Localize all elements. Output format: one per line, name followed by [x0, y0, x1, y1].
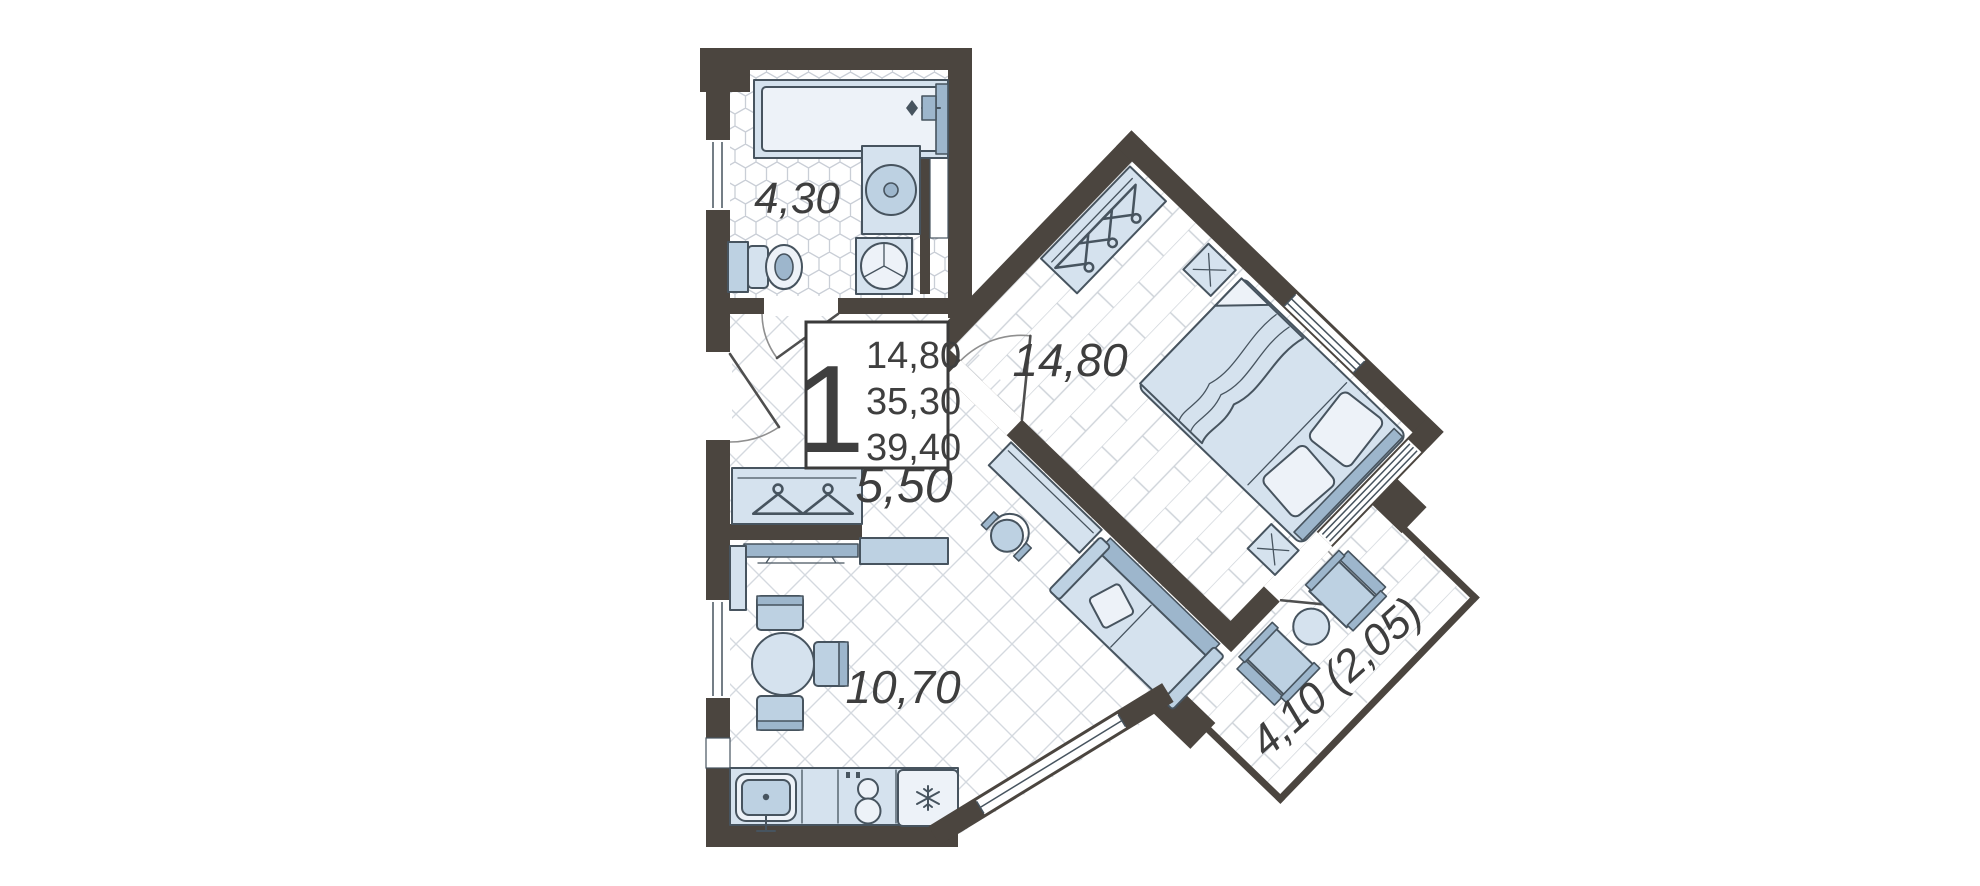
bathroom-label: 4,30: [754, 174, 840, 223]
washing-machine-icon: [862, 146, 920, 234]
wall-bottom: [706, 825, 958, 847]
wall-hall-kitchen: [706, 524, 862, 540]
wall-left-1: [706, 48, 730, 140]
kitchen-counter: [730, 768, 958, 831]
dining-table: [752, 633, 814, 695]
chair: [814, 642, 848, 686]
washbasin-icon: [856, 238, 912, 294]
info-box: 1 14,80 35,30 39,40: [796, 322, 962, 479]
wall-left-3: [706, 440, 730, 600]
wall-left-2: [706, 210, 730, 352]
wall-left-4: [706, 698, 730, 738]
chair: [757, 596, 803, 630]
toilet-icon: [728, 242, 802, 292]
wall-niche: [706, 738, 730, 768]
floor-plan: 1 14,80 35,30 39,40 4,30 5,50 14,80 10,7…: [0, 0, 1980, 886]
wall-bathroom-right: [948, 48, 972, 240]
kitchen-label: 10,70: [845, 661, 961, 713]
bedroom-label: 14,80: [1012, 334, 1128, 386]
rooms-count: 1: [796, 341, 865, 479]
floor-plan-page: 1 14,80 35,30 39,40 4,30 5,50 14,80 10,7…: [0, 0, 1980, 886]
wall-shaft-strip: [920, 146, 930, 294]
hallway-label: 5,50: [855, 457, 953, 513]
kitchen-window: [706, 600, 730, 698]
area-living: 14,80: [866, 335, 961, 377]
tv-icon: [744, 544, 858, 557]
bathroom-window: [706, 140, 730, 210]
console-shelf: [860, 538, 948, 564]
area-apartment: 35,30: [866, 381, 961, 423]
chair: [757, 696, 803, 730]
